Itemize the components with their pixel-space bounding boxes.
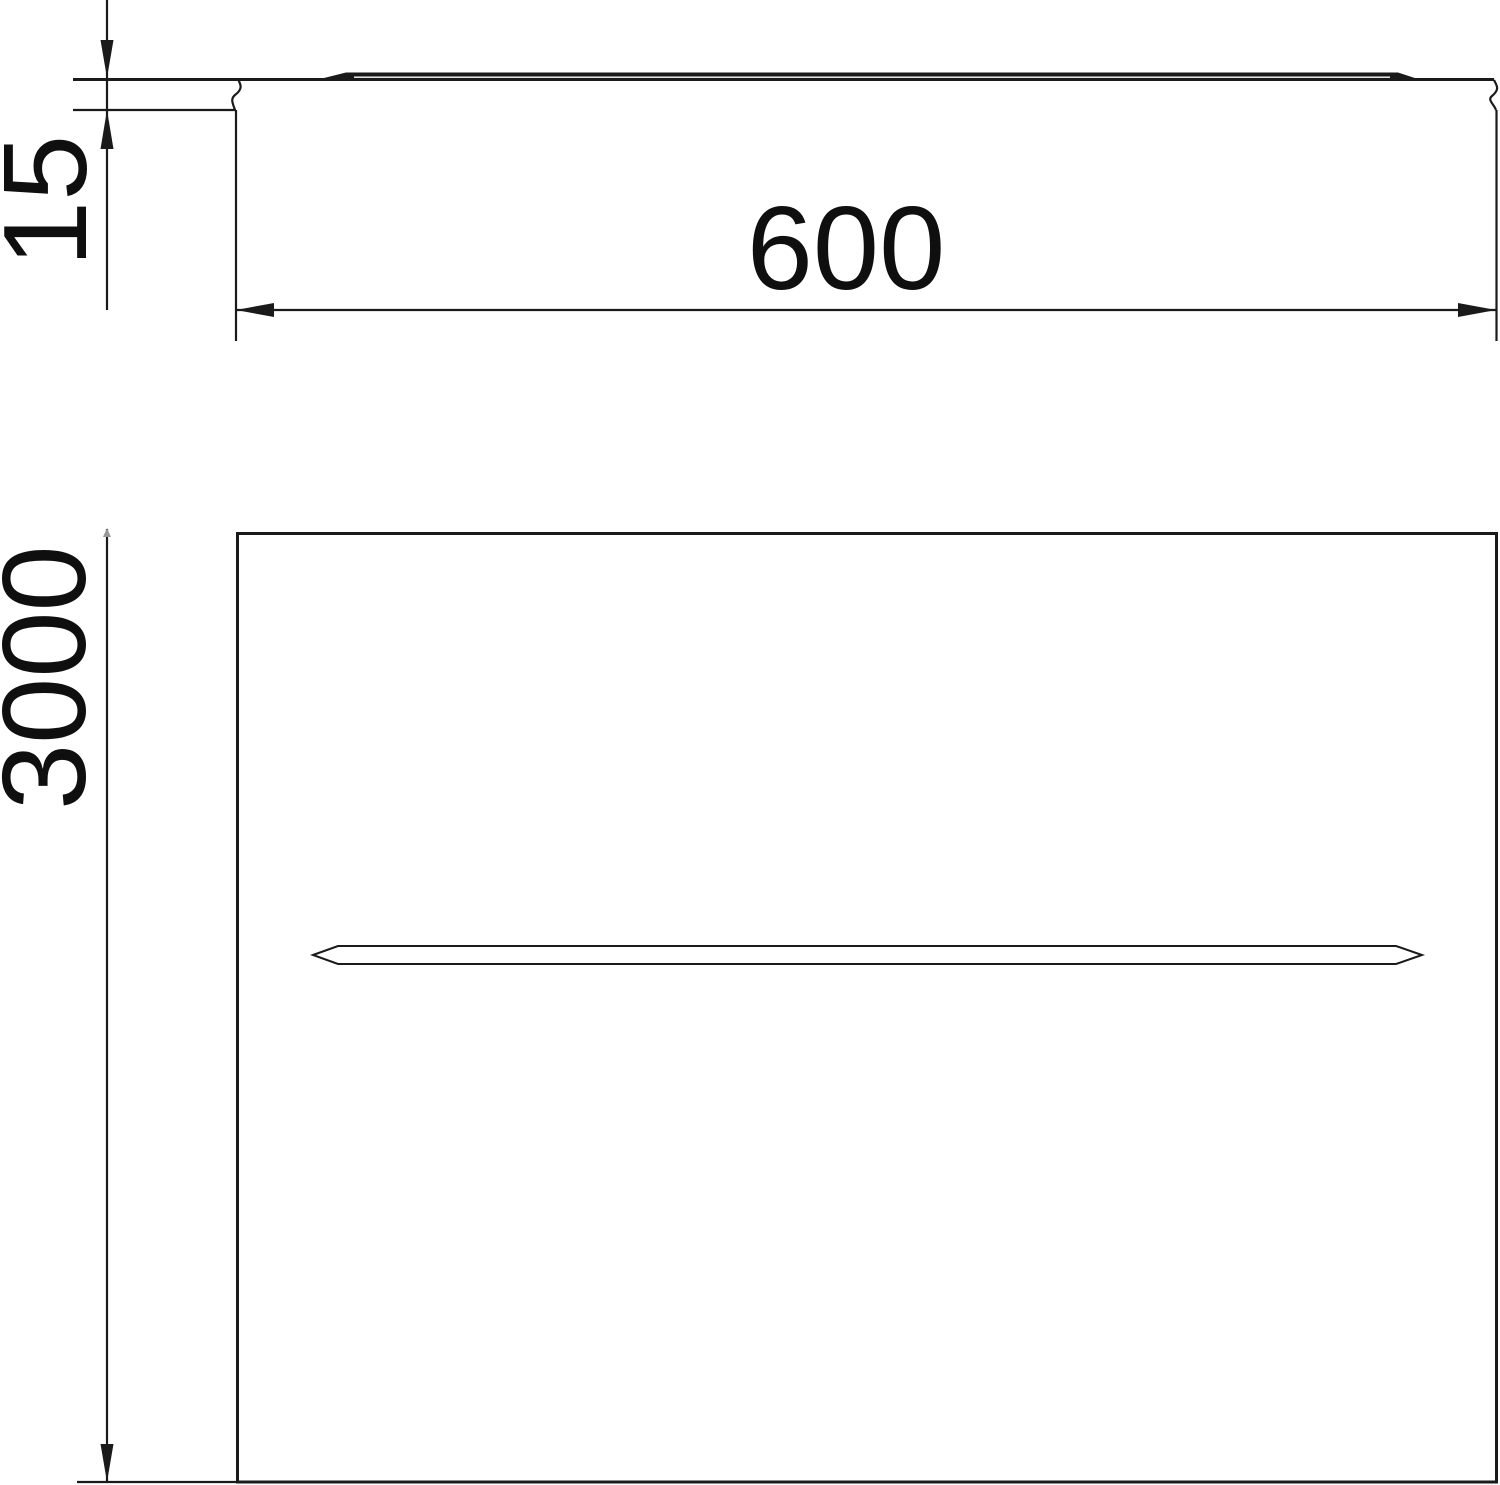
technical-drawing-canvas: 15 600 3000 <box>0 0 1500 1485</box>
dim-height-label: 15 <box>0 135 112 267</box>
break-line-right <box>1490 80 1497 110</box>
section-view: 15 600 <box>0 0 1497 341</box>
embossed-rib <box>313 946 1422 964</box>
dim-height: 15 <box>0 0 114 310</box>
dim-width-label: 600 <box>747 182 946 315</box>
plan-view: 3000 <box>0 528 1497 1482</box>
dim-width: 600 <box>236 110 1497 341</box>
technical-drawing-page: 15 600 3000 <box>0 0 1500 1485</box>
dim-length-label: 3000 <box>0 545 111 810</box>
dim-length: 3000 <box>0 528 240 1482</box>
dim-length-top-tick <box>103 528 111 537</box>
dim-length-arrow-down <box>101 1444 114 1482</box>
dim-width-arrow-right <box>1458 303 1496 317</box>
break-line-left <box>232 79 240 110</box>
cover-outline <box>238 534 1497 1483</box>
dim-width-arrow-left <box>236 303 274 317</box>
dim-height-arrow-down <box>101 40 114 78</box>
